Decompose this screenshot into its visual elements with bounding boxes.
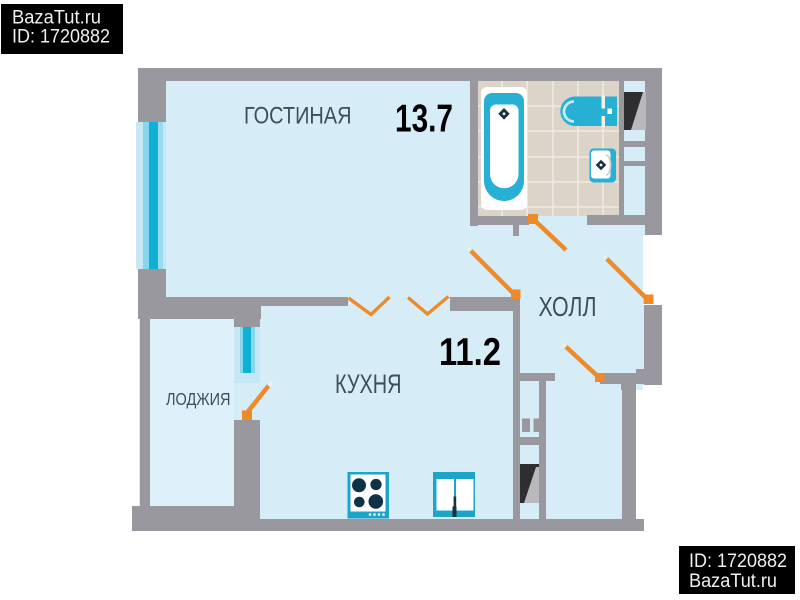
svg-text:BazaTut.ru: BazaTut.ru [689,571,777,592]
svg-text:ID: 1720882: ID: 1720882 [12,27,110,48]
svg-text:ГОСТИНАЯ: ГОСТИНАЯ [244,103,352,130]
svg-text:ХОЛЛ: ХОЛЛ [539,291,597,322]
svg-text:ЛОДЖИЯ: ЛОДЖИЯ [166,389,231,409]
svg-text:11.2: 11.2 [439,331,501,374]
svg-text:13.7: 13.7 [395,98,453,141]
svg-text:КУХНЯ: КУХНЯ [335,369,402,399]
svg-text:BazaTut.ru: BazaTut.ru [12,8,101,29]
svg-text:ID: 1720882: ID: 1720882 [689,551,787,572]
